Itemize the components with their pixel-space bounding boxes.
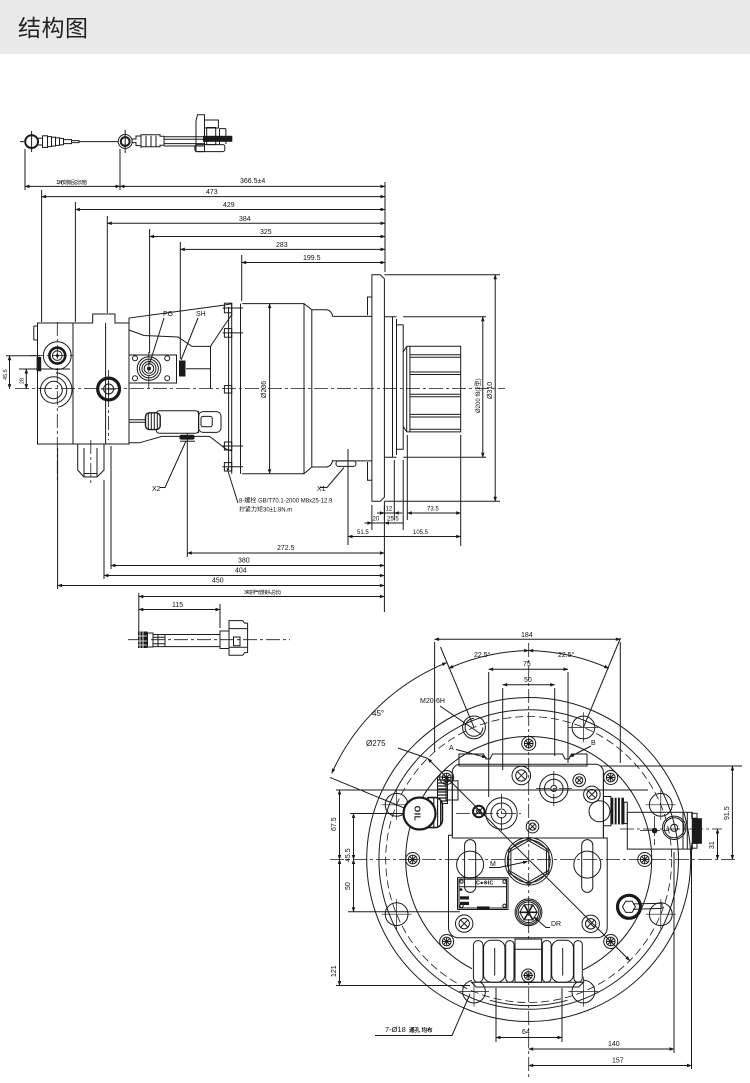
svg-text:OIL: OIL: [413, 806, 423, 822]
svg-text:380: 380: [238, 558, 250, 565]
svg-text:25.5: 25.5: [387, 517, 399, 523]
svg-text:M: M: [490, 861, 496, 868]
svg-text:8-螺栓 GB/T70.1-2000 M8x25-12.9: 8-螺栓 GB/T70.1-2000 M8x25-12.9: [239, 497, 333, 505]
svg-text:12: 12: [386, 507, 393, 513]
svg-text:50: 50: [345, 882, 352, 890]
svg-text:134(安装后总长度): 134(安装后总长度): [56, 179, 87, 186]
svg-text:45.5: 45.5: [345, 848, 352, 862]
svg-text:50: 50: [524, 677, 532, 684]
svg-text:91.5: 91.5: [724, 806, 731, 820]
svg-text:115: 115: [172, 602, 183, 609]
svg-text:404: 404: [235, 568, 247, 575]
svg-text:拧紧力矩30±1.8N.m: 拧紧力矩30±1.8N.m: [239, 506, 292, 514]
svg-text:429: 429: [223, 202, 235, 209]
svg-text:Ø200 f8(2型): Ø200 f8(2型): [474, 378, 482, 413]
svg-text:272.5: 272.5: [277, 545, 295, 552]
svg-text:199.5: 199.5: [303, 255, 321, 262]
svg-text:64: 64: [522, 1029, 530, 1036]
svg-text:75: 75: [523, 661, 531, 668]
svg-text:384: 384: [239, 216, 251, 223]
svg-text:C●※IC: C●※IC: [476, 879, 493, 887]
svg-text:45.5: 45.5: [3, 369, 9, 380]
svg-text:B: B: [591, 740, 596, 747]
svg-text:473: 473: [206, 189, 218, 196]
svg-text:Ø310: Ø310: [487, 382, 494, 399]
svg-text:X2: X2: [152, 486, 161, 493]
svg-text:M20-6H: M20-6H: [420, 698, 445, 705]
svg-text:7-Ø18: 7-Ø18: [385, 1025, 406, 1034]
svg-text:通孔 均布: 通孔 均布: [409, 1026, 433, 1034]
svg-text:67.5: 67.5: [331, 817, 338, 831]
svg-text:22.5°: 22.5°: [474, 651, 491, 659]
svg-text:340(排气管接头总长): 340(排气管接头总长): [244, 589, 281, 596]
svg-text:45°: 45°: [372, 709, 384, 718]
svg-text:366.5±4: 366.5±4: [240, 178, 265, 185]
svg-text:157: 157: [612, 1058, 624, 1065]
svg-text:SH: SH: [196, 311, 206, 318]
svg-text:20: 20: [373, 517, 380, 523]
svg-text:Ø236: Ø236: [261, 381, 268, 398]
svg-text:A: A: [449, 745, 454, 752]
svg-text:121: 121: [331, 965, 338, 977]
svg-text:73.5: 73.5: [427, 507, 439, 513]
svg-text:105.5: 105.5: [413, 530, 429, 536]
svg-text:28: 28: [20, 378, 26, 384]
svg-text:31: 31: [709, 841, 716, 849]
svg-text:22.5°: 22.5°: [558, 651, 575, 659]
svg-text:DR: DR: [551, 921, 561, 928]
svg-text:450: 450: [212, 578, 224, 585]
svg-text:283: 283: [276, 242, 288, 249]
svg-text:325: 325: [260, 229, 272, 236]
svg-text:Ø275: Ø275: [366, 739, 386, 748]
svg-text:51.5: 51.5: [357, 530, 369, 536]
svg-text:140: 140: [608, 1041, 620, 1048]
svg-text:184: 184: [521, 632, 533, 639]
